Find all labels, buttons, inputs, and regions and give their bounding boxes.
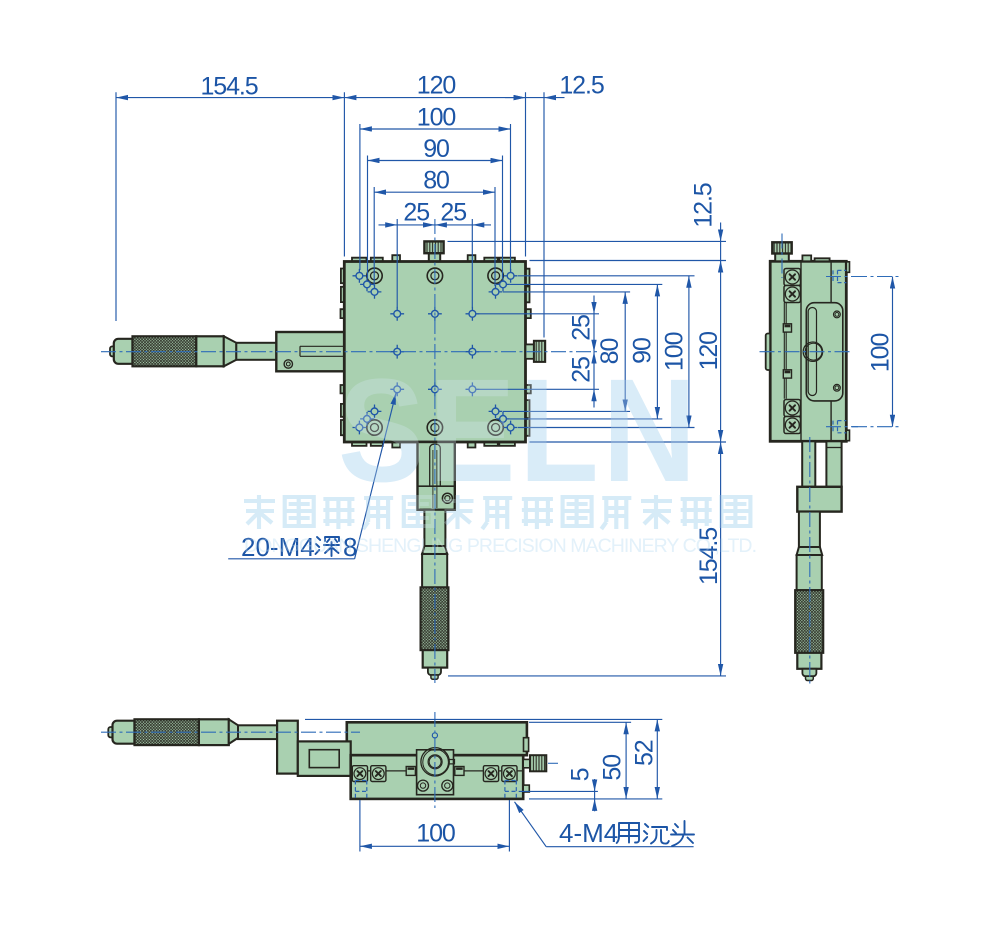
svg-text:90: 90 xyxy=(423,135,449,163)
svg-text:12.5: 12.5 xyxy=(689,183,717,227)
svg-text:4-M4: 4-M4 xyxy=(559,818,618,848)
svg-text:12.5: 12.5 xyxy=(559,72,603,100)
svg-text:25: 25 xyxy=(567,315,595,341)
svg-text:100: 100 xyxy=(417,103,456,131)
svg-text:52: 52 xyxy=(631,740,659,766)
svg-text:25: 25 xyxy=(403,199,429,227)
svg-text:80: 80 xyxy=(423,166,449,194)
svg-text:25: 25 xyxy=(440,199,466,227)
svg-text:100: 100 xyxy=(867,334,895,373)
svg-text:120: 120 xyxy=(417,72,456,100)
svg-text:50: 50 xyxy=(599,755,627,781)
svg-text:5: 5 xyxy=(566,768,594,781)
svg-text:154.5: 154.5 xyxy=(200,72,257,100)
svg-text:100: 100 xyxy=(416,820,455,848)
